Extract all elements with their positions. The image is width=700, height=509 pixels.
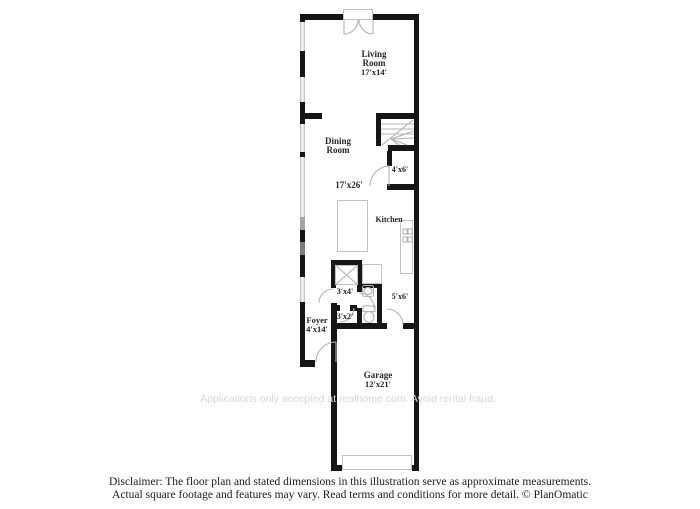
room-dims: 17'x14' [352,68,396,77]
french-door-icon [344,20,373,34]
door-arc [387,309,403,325]
room-dims: 4'x14' [296,325,338,334]
room-label-dining: Dining Room [318,137,358,155]
room-name: Living Room [361,49,386,68]
plan-symbols-layer [0,0,700,509]
disclaimer-line-1: Disclaimer: The floor plan and stated di… [0,476,700,489]
room-dims-dining: 17'x26' [327,181,371,190]
room-name: Dining Room [325,136,351,155]
room-dims: 12'x21' [356,380,400,389]
room-dims-3x4: 3'x4' [327,288,363,296]
stairs-icon [381,120,414,145]
room-dims: 5'x6' [392,292,408,301]
stove-icon [403,229,412,242]
room-dims: 4'x6' [392,165,408,174]
room-label-foyer: Foyer 4'x14' [296,316,338,333]
closet-x-icon [335,265,358,285]
toilet-icon [363,306,375,323]
floor-plan-page: Living Room 17'x14' Dining Room 17'x26' … [0,0,700,509]
room-label-living: Living Room 17'x14' [352,50,396,77]
room-dims: 17'x26' [335,180,363,190]
room-dims: 3'x4' [337,287,353,296]
disclaimer: Disclaimer: The floor plan and stated di… [0,476,700,502]
room-dims-4x6: 4'x6' [382,166,418,174]
watermark-text: Applications only accepted at realhome.c… [148,393,548,405]
room-dims: 3'x2' [337,312,353,321]
room-dims-5x6: 5'x6' [382,293,418,301]
front-door-arc [316,342,336,362]
room-name: Kitchen [375,215,402,224]
sink-icon [363,286,374,297]
disclaimer-line-2: Actual square footage and features may v… [0,489,700,502]
room-label-garage: Garage 12'x21' [356,371,400,389]
room-label-kitchen: Kitchen [369,216,409,224]
